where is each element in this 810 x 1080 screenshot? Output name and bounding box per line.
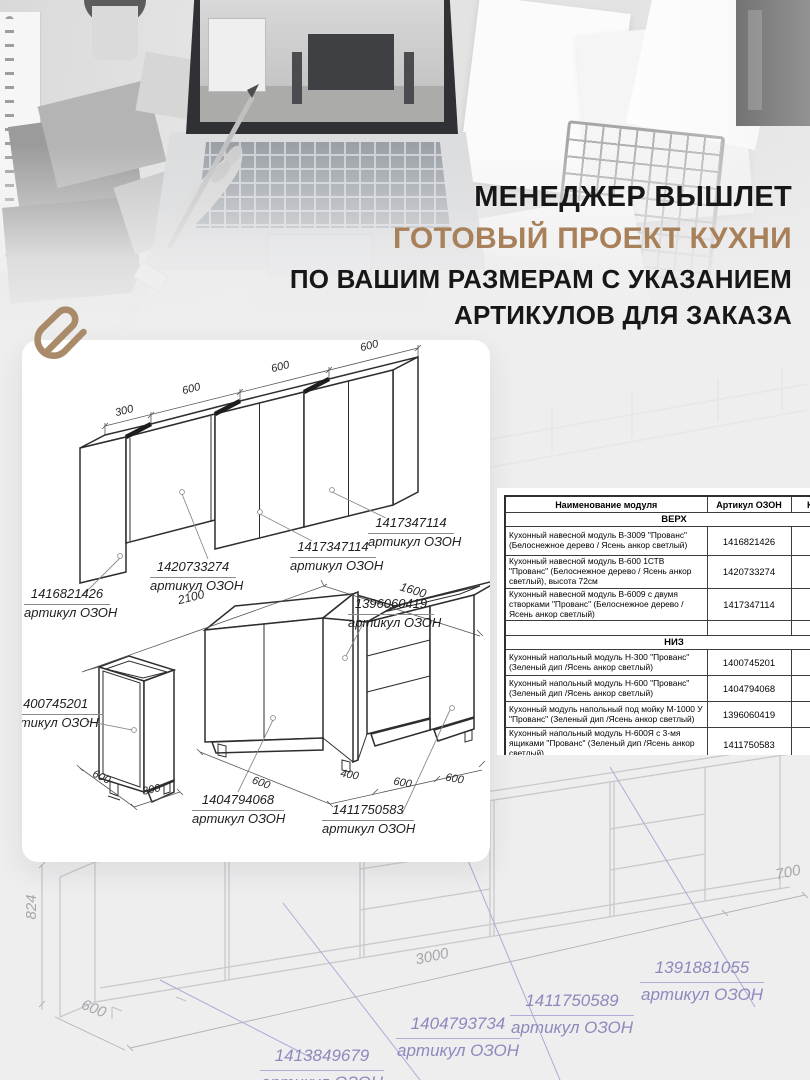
headline-line1: МЕНЕДЖЕР ВЫШЛЕТ [290,181,792,214]
faint-kitchen-sketch [482,348,810,488]
article-number: 1396060419 [348,596,434,615]
bg-dim-700: 700 [774,862,803,884]
modules-table: Наименование модуля Артикул ОЗОН Кол- ВЕ… [504,495,810,755]
article-number: 1404794068 [192,792,284,811]
bg-article-label: 1404793734 артикул ОЗОН [396,1012,520,1063]
module-name: Кухонный навесной модуль В-6009 с двумя … [505,588,707,621]
module-article: 1411750583 [707,728,791,755]
article-label: 1420733274 артикул ОЗОН [150,559,236,595]
article-caption: артикул ОЗОН [396,1039,520,1064]
article-label: 1411750583 артикул ОЗОН [322,802,414,838]
module-name: Кухонный навесной модуль В-600 1СТВ "Про… [505,556,707,589]
article-label: 1396060419 артикул ОЗОН [348,596,434,632]
article-label: 1416821426 артикул ОЗОН [24,586,110,622]
section-row: ВЕРХ [505,513,810,527]
article-number: 1400745201 [22,696,102,715]
article-caption: артикул ОЗОН [24,605,110,622]
article-label: 1417347114 артикул ОЗОН [290,539,376,575]
article-caption: артикул ОЗОН [640,983,764,1008]
module-article: 1420733274 [707,556,791,589]
dim-600: 600 [181,381,203,397]
article-caption: артикул ОЗОН [192,811,284,828]
table-row: Кухонный навесной модуль В-6009 с двумя … [505,588,810,621]
article-number: 1416821426 [24,586,110,605]
poster: МЕНЕДЖЕР ВЫШЛЕТ ГОТОВЫЙ ПРОЕКТ КУХНИ ПО … [0,0,810,1080]
dim-600: 600 [359,340,381,354]
article-number: 1417347114 [368,515,454,534]
module-name: Кухонный модуль напольный под мойку М-10… [505,702,707,728]
article-caption: артикул ОЗОН [368,534,454,551]
module-name: Кухонный навесной модуль В-3009 "Прованс… [505,527,707,556]
article-number: 1391881055 [640,956,764,983]
article-label: 1400745201 артикул ОЗОН [22,696,102,732]
article-number: 1411750589 [510,989,634,1016]
dim-bottom-600: 600 [250,775,272,793]
section-title: ВЕРХ [505,513,810,527]
headline-line4: АРТИКУЛОВ ДЛЯ ЗАКАЗА [290,300,792,331]
table-row: Кухонный навесной модуль В-600 1СТВ "Про… [505,556,810,589]
table-row: Кухонный напольный модуль Н-300 "Прованс… [505,650,810,676]
module-name: Кухонный напольный модуль Н-300 "Прованс… [505,650,707,676]
article-caption: артикул ОЗОН [260,1071,384,1080]
bg-article-label: 1413849679 артикул ОЗОН [260,1044,384,1080]
article-caption: артикул ОЗОН [322,821,414,838]
article-caption: артикул ОЗОН [290,558,376,575]
table-row: Кухонный навесной модуль В-3009 "Прованс… [505,527,810,556]
article-number: 1417347114 [290,539,376,558]
project-card: 300 600 600 600 [22,340,490,862]
article-number: 1411750583 [322,802,414,821]
article-number: 1404793734 [396,1012,520,1039]
dim-300: 300 [114,403,136,419]
col-header-name: Наименование модуля [505,496,707,513]
col-header-qty: Кол- [791,496,810,513]
article-label: 1417347114 артикул ОЗОН [368,515,454,551]
module-article: 1396060419 [707,702,791,728]
modules-table-panel: Наименование модуля Артикул ОЗОН Кол- ВЕ… [497,488,810,755]
headline: МЕНЕДЖЕР ВЫШЛЕТ ГОТОВЫЙ ПРОЕКТ КУХНИ ПО … [290,181,792,331]
article-number: 1413849679 [260,1044,384,1071]
module-article: 1404794068 [707,676,791,702]
section-row: НИЗ [505,636,810,650]
article-caption: артикул ОЗОН [348,615,434,632]
article-caption: артикул ОЗОН [150,578,236,595]
table-row: Кухонный модуль напольный под мойку М-10… [505,702,810,728]
dim-bottom-600: 600 [444,772,465,787]
col-header-article: Артикул ОЗОН [707,496,791,513]
module-article: 1400745201 [707,650,791,676]
article-caption: артикул ОЗОН [22,715,102,732]
bg-article-label: 1411750589 артикул ОЗОН [510,989,634,1040]
table-row-empty [505,621,810,636]
table-row: Кухонный напольный модуль Н-600Я с 3-мя … [505,728,810,755]
article-label: 1404794068 артикул ОЗОН [192,792,284,828]
dim-600: 600 [270,359,292,375]
bg-dim-824: 824 [23,894,40,919]
dim-bottom-400: 400 [339,768,360,783]
dim-bottom-600: 600 [392,776,413,791]
bg-article-label: 1391881055 артикул ОЗОН [640,956,764,1007]
article-number: 1420733274 [150,559,236,578]
paperclip-icon [28,299,92,365]
article-caption: артикул ОЗОН [510,1016,634,1041]
module-name: Кухонный напольный модуль Н-600Я с 3-мя … [505,728,707,755]
headline-line2-accent: ГОТОВЫЙ ПРОЕКТ КУХНИ [290,222,792,256]
module-article: 1417347114 [707,588,791,621]
table-header-row: Наименование модуля Артикул ОЗОН Кол- [505,496,810,513]
headline-line3: ПО ВАШИМ РАЗМЕРАМ С УКАЗАНИЕМ [290,264,792,295]
module-article: 1416821426 [707,527,791,556]
section-title: НИЗ [505,636,810,650]
module-name: Кухонный напольный модуль Н-600 "Прованс… [505,676,707,702]
table-row: Кухонный напольный модуль Н-600 "Прованс… [505,676,810,702]
